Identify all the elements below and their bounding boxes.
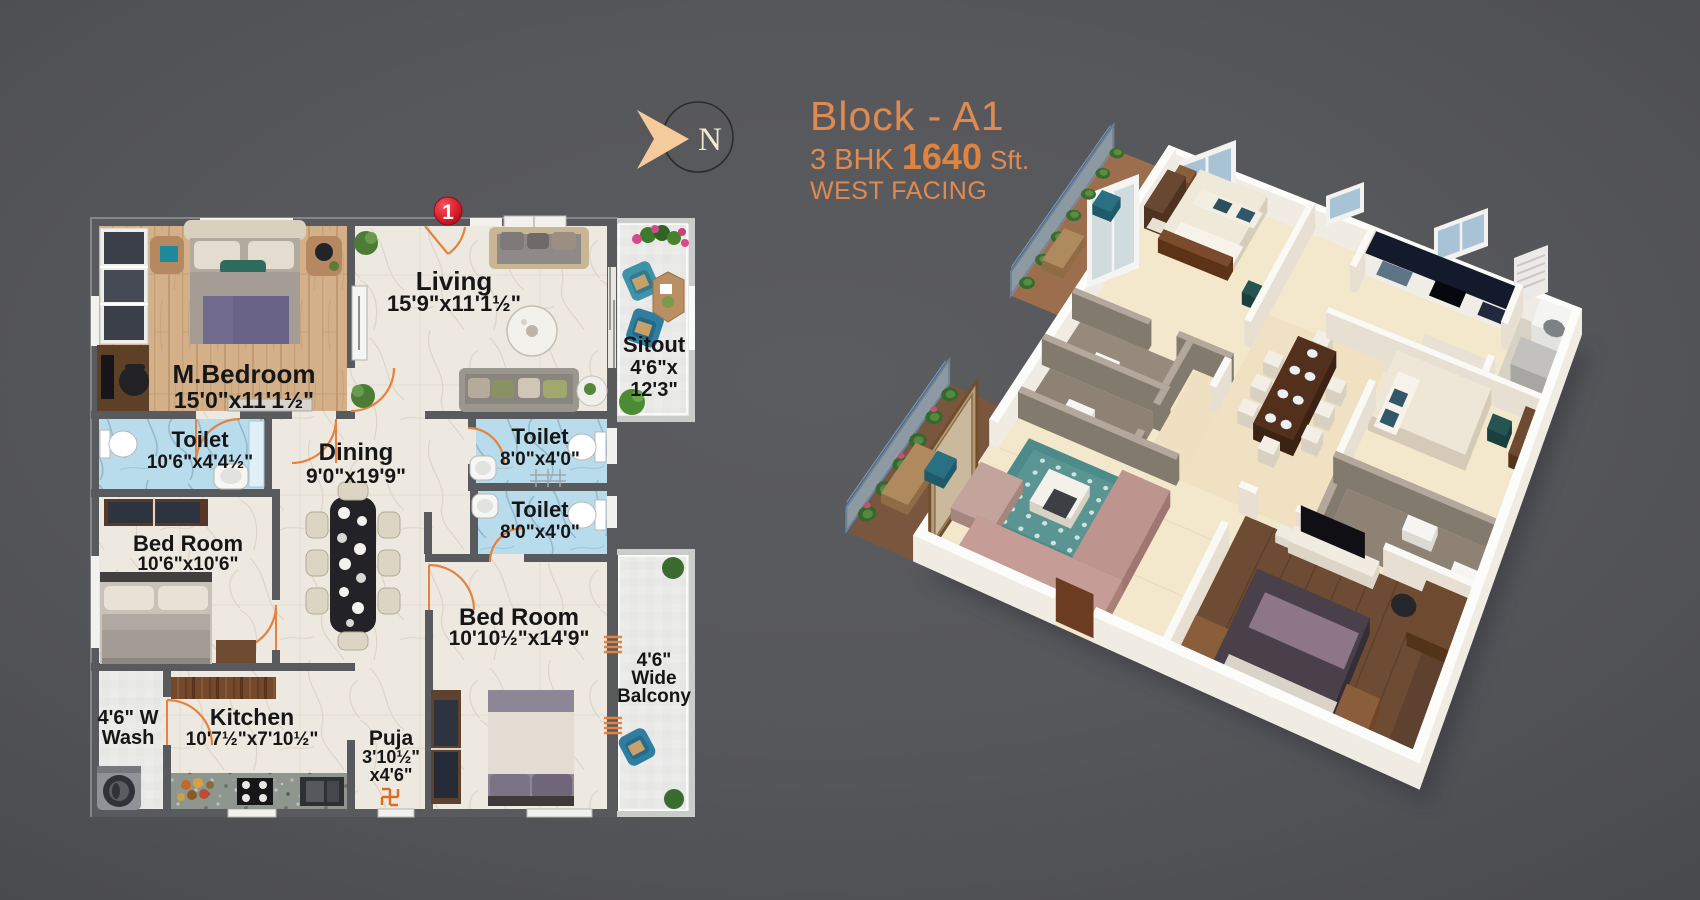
svg-text:4'6" W: 4'6" W <box>98 707 159 729</box>
svg-text:10'10½"x14'9": 10'10½"x14'9" <box>449 627 590 650</box>
svg-text:9'0"x19'9": 9'0"x19'9" <box>306 465 406 488</box>
svg-text:15'0"x11'1½": 15'0"x11'1½" <box>174 387 314 413</box>
svg-text:Toilet: Toilet <box>511 424 569 449</box>
svg-text:Kitchen: Kitchen <box>210 704 294 730</box>
svg-text:Balcony: Balcony <box>617 686 691 707</box>
svg-text:8'0"x4'0": 8'0"x4'0" <box>500 522 580 543</box>
svg-text:Block - A1: Block - A1 <box>810 93 1005 139</box>
svg-text:Bed Room: Bed Room <box>133 531 243 556</box>
svg-text:WEST FACING: WEST FACING <box>810 177 987 205</box>
svg-text:Sitout: Sitout <box>623 332 686 357</box>
svg-text:Dining: Dining <box>319 439 394 466</box>
svg-text:M.Bedroom: M.Bedroom <box>173 359 316 389</box>
svg-text:4'6"x: 4'6"x <box>630 357 678 379</box>
svg-text:10'7½"x7'10½": 10'7½"x7'10½" <box>186 729 319 750</box>
svg-text:N: N <box>698 122 722 158</box>
svg-text:12'3": 12'3" <box>630 379 678 401</box>
svg-text:1: 1 <box>442 201 454 224</box>
svg-text:10'6"x4'4½": 10'6"x4'4½" <box>147 452 253 473</box>
svg-text:Toilet: Toilet <box>171 427 229 452</box>
svg-text:10'6"x10'6": 10'6"x10'6" <box>137 554 238 575</box>
svg-text:15'9"x11'1½": 15'9"x11'1½" <box>387 291 521 316</box>
svg-text:Wash: Wash <box>102 727 155 749</box>
svg-text:Toilet: Toilet <box>511 497 569 522</box>
svg-text:3'10½": 3'10½" <box>362 747 420 767</box>
svg-text:8'0"x4'0": 8'0"x4'0" <box>500 449 580 470</box>
svg-text:x4'6": x4'6" <box>370 765 413 785</box>
